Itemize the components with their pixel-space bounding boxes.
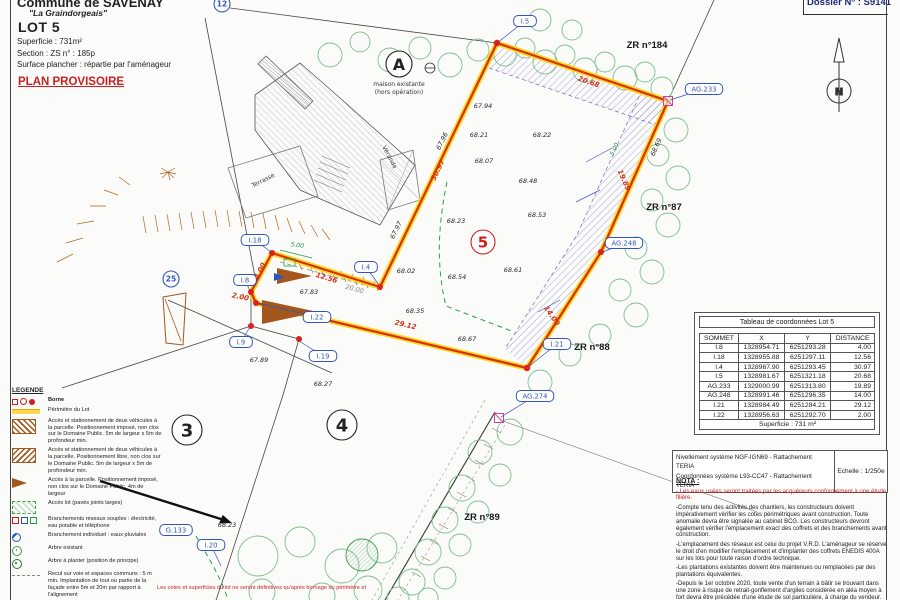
table-cell: 6251284.21 bbox=[785, 401, 831, 411]
surface-plancher-line: Surface plancher : répartie par l'aménag… bbox=[17, 60, 171, 69]
point-label-text: I.9 bbox=[237, 338, 246, 346]
table-cell: 1328984.49 bbox=[738, 401, 784, 411]
plan-text: maison existante bbox=[373, 81, 425, 88]
point-label-text: AG.233 bbox=[692, 85, 717, 93]
table-cell: 6251293.28 bbox=[785, 343, 831, 353]
elevation-label: 67.94 bbox=[474, 102, 493, 110]
tree-ex-icon bbox=[12, 546, 22, 556]
circled-label-A: A bbox=[386, 51, 412, 77]
elevation-label: 67.83 bbox=[300, 288, 319, 296]
perimetre-symbol bbox=[12, 407, 48, 415]
legend-item-label: Accès à la parcelle. Positionnement impo… bbox=[48, 477, 162, 497]
point-label-I.18: I.18 bbox=[241, 235, 271, 253]
table-cell: 1328991.46 bbox=[738, 391, 784, 401]
point-label-AG.248: AG.248 bbox=[603, 238, 643, 253]
point-label-text: AG.274 bbox=[523, 392, 548, 400]
table-header-cell: Y bbox=[785, 334, 831, 344]
elevation-label: 68.27 bbox=[314, 380, 333, 388]
recul-symbol bbox=[12, 571, 48, 579]
point-label-AG.274: AG.274 bbox=[501, 391, 554, 418]
elevation-label: 68.61 bbox=[504, 266, 523, 274]
legend-item-recul: Recul sur voie et espaces communs : 5 m … bbox=[12, 571, 162, 598]
table-row: I.81328954.716251293.284.00 bbox=[700, 343, 875, 353]
lieu-dit: "La Graindorgeais" bbox=[29, 8, 107, 18]
borne-symbol bbox=[12, 397, 48, 405]
point-label-text: I.19 bbox=[317, 352, 330, 360]
hedge-line bbox=[372, 400, 505, 600]
acces-fleche-symbol bbox=[12, 477, 48, 488]
acces-lot-symbol bbox=[12, 500, 48, 514]
table-footer-cell: Superficie : 731 m² bbox=[700, 420, 875, 430]
b-ci-icon bbox=[20, 398, 27, 405]
nota-paragraph: -Compte tenu des activités des chantiers… bbox=[676, 505, 888, 539]
elevation-label: 68.22 bbox=[533, 131, 552, 139]
sq-r-icon bbox=[12, 517, 19, 524]
pave-gr-icon bbox=[12, 501, 36, 514]
point-label-text: G.133 bbox=[166, 526, 186, 534]
table-row: I.41328967.906251293.4530.97 bbox=[700, 362, 875, 372]
table-cell: I.18 bbox=[700, 353, 739, 363]
plan-text: Terrasse bbox=[250, 172, 276, 190]
legend-item-arbre-existant: Arbre existant bbox=[12, 545, 162, 556]
hatch-br-icon bbox=[12, 419, 36, 434]
table-cell: I.21 bbox=[700, 401, 739, 411]
legend-item-borne: Borne bbox=[12, 397, 162, 405]
point-label-AG.233: AG.233 bbox=[670, 84, 723, 101]
point-label-I.19: I.19 bbox=[299, 341, 337, 362]
table-cell: I.5 bbox=[700, 372, 739, 382]
legend-item-label: Arbre existant bbox=[48, 545, 162, 552]
point-label-text: AG.248 bbox=[612, 239, 637, 247]
table-row: I.51328981.676251321.1820.68 bbox=[700, 372, 875, 382]
elevation-label: 68.07 bbox=[475, 157, 494, 165]
plan-provisoire-stamp: PLAN PROVISOIRE bbox=[18, 76, 124, 88]
nota-section: NOTA : - Les eaux usées seront traitées … bbox=[676, 478, 888, 600]
distance-label: 30.97 bbox=[430, 158, 447, 182]
table-cell: 1328981.67 bbox=[738, 372, 784, 382]
table-header-cell: DISTANCE bbox=[831, 334, 875, 344]
arrow-br-icon bbox=[12, 478, 27, 488]
legend-item-perimetre: Périmètre du Lot bbox=[12, 407, 162, 415]
table-cell: 2.00 bbox=[831, 410, 875, 420]
table-cell: AG.233 bbox=[700, 381, 739, 391]
table-cell: 6251297.11 bbox=[785, 353, 831, 363]
table-cell: 12.56 bbox=[831, 353, 875, 363]
elevation-label: 68.23 bbox=[218, 521, 237, 529]
table-cell: 6251321.18 bbox=[785, 372, 831, 382]
nivellement-line: Nivellement système NGF-IGN69 - Rattache… bbox=[676, 453, 831, 472]
table-cell: I.4 bbox=[700, 362, 739, 372]
table-cell: 4.00 bbox=[831, 343, 875, 353]
parcel-label: ZR n°87 bbox=[646, 202, 681, 213]
dossier-box: Dossier N° : S9141 bbox=[803, 0, 888, 15]
reseaux-symbol bbox=[12, 516, 48, 524]
plan-text: (hors opération) bbox=[375, 89, 423, 96]
circled-label-25: 25 bbox=[163, 271, 179, 287]
point-label-G.133: G.133 bbox=[160, 525, 193, 536]
per-bar-icon bbox=[12, 409, 40, 414]
b-sq-icon bbox=[12, 399, 18, 405]
legend-item-label: Arbre à planter (position de principe) bbox=[48, 558, 162, 565]
legend-item-label: Borne bbox=[48, 397, 162, 404]
elevation-label: 68.54 bbox=[448, 273, 467, 281]
tree-pl-icon bbox=[12, 559, 22, 569]
north-compass-icon: N bbox=[827, 38, 851, 112]
bornage-note: Les cotes et superficies du lot ne seron… bbox=[157, 585, 366, 591]
legend-item-label: Accès et stationnement de deux véhicules… bbox=[48, 418, 162, 445]
acces-libre-symbol bbox=[12, 447, 48, 463]
legend-title: LEGENDE bbox=[12, 387, 162, 394]
table-cell: I.22 bbox=[700, 410, 739, 420]
pluviales-symbol bbox=[12, 532, 48, 542]
legend-items: BornePérimètre du LotAccès et stationnem… bbox=[12, 397, 162, 600]
coordinate-table-grid: SOMMETXYDISTANCE I.81328954.716251293.28… bbox=[699, 333, 875, 430]
dossier-number: Dossier N° : S9141 bbox=[807, 0, 891, 8]
circled-label-12: 12 bbox=[214, 0, 230, 12]
legend-item-acces-fleche: Accès à la parcelle. Positionnement impo… bbox=[12, 477, 162, 497]
table-cell: 1328956.63 bbox=[738, 410, 784, 420]
table-cell: 1328967.90 bbox=[738, 362, 784, 372]
coordinate-table: Tableau de coordonnées Lot 5 SOMMETXYDIS… bbox=[694, 312, 880, 435]
elevation-label: 68.23 bbox=[447, 217, 466, 225]
table-cell: 29.12 bbox=[831, 401, 875, 411]
table-row: AG.2481328991.466251296.3514.00 bbox=[700, 391, 875, 401]
elevation-label: 67.89 bbox=[250, 356, 269, 364]
b-do-icon bbox=[29, 399, 35, 405]
legend-item-reseaux: Branchements réseaux souples : électrici… bbox=[12, 516, 162, 530]
legend-item-acces-lot: Accès lot (pavés joints larges) bbox=[12, 500, 162, 514]
point-label-text: I.21 bbox=[551, 340, 564, 348]
circled-label-text: 12 bbox=[217, 0, 227, 9]
coordinate-table-title: Tableau de coordonnées Lot 5 bbox=[699, 316, 875, 328]
nota-paragraph: -Les plantations existantes doivent être… bbox=[676, 565, 888, 579]
legend-item-arbre-planter: Arbre à planter (position de principe) bbox=[12, 558, 162, 569]
circled-label-5: 5 bbox=[471, 230, 495, 254]
utility-symbol-icon bbox=[425, 63, 435, 73]
circled-label-text: 25 bbox=[166, 275, 176, 284]
elevation-label: 68.67 bbox=[458, 335, 477, 343]
point-label-text: I.20 bbox=[205, 541, 218, 549]
nota-body: - Les eaux usées seront traitées par les… bbox=[676, 489, 888, 600]
table-row: AG.2331329000.996251313.8019.89 bbox=[700, 381, 875, 391]
legend-item-label: Périmètre du Lot bbox=[48, 407, 162, 414]
elevation-label: 68.48 bbox=[519, 177, 538, 185]
lot-title: LOT 5 bbox=[18, 19, 60, 35]
table-row: I.211328984.496251284.2129.12 bbox=[700, 401, 875, 411]
sheet-border-left bbox=[10, 0, 11, 600]
legend-item-acces-impose: Accès et stationnement de deux véhicules… bbox=[12, 418, 162, 445]
point-label-text: I.22 bbox=[311, 313, 324, 321]
superficie-line: Superficie : 731m² bbox=[17, 37, 82, 46]
table-cell: 6251296.35 bbox=[785, 391, 831, 401]
dash-gr-icon bbox=[12, 575, 40, 576]
elevation-label: 68.02 bbox=[397, 267, 416, 275]
elevation-label: 68.21 bbox=[470, 131, 489, 139]
circled-label-text: 4 bbox=[336, 415, 349, 436]
svg-text:N: N bbox=[835, 87, 843, 98]
point-label-text: I.18 bbox=[249, 236, 262, 244]
table-header-cell: X bbox=[738, 334, 784, 344]
table-cell: 1328954.71 bbox=[738, 343, 784, 353]
table-cell: AG.248 bbox=[700, 391, 739, 401]
elevation-label: 68.53 bbox=[528, 211, 547, 219]
circled-label-text: 5 bbox=[478, 233, 488, 251]
elevation-label: 68.35 bbox=[406, 307, 425, 315]
table-cell: 30.97 bbox=[831, 362, 875, 372]
elevation-label: 20.00 bbox=[344, 283, 364, 296]
table-cell: 6251292.70 bbox=[785, 410, 831, 420]
table-cell: I.8 bbox=[700, 343, 739, 353]
acces-impose-symbol bbox=[12, 418, 48, 434]
circled-label-3: 3 bbox=[172, 415, 202, 445]
circled-label-4: 4 bbox=[327, 410, 357, 440]
point-label-text: I.8 bbox=[241, 276, 250, 284]
sq-b-icon bbox=[21, 517, 28, 524]
table-row: I.221328956.636251292.702.00 bbox=[700, 410, 875, 420]
nota-paragraph: - Les eaux usées seront traitées par les… bbox=[676, 489, 888, 503]
legend-item-label: Accès lot (pavés joints larges) bbox=[48, 500, 162, 507]
legend-item-label: Branchements réseaux souples : électrici… bbox=[48, 516, 162, 530]
arbre-planter-symbol bbox=[12, 558, 48, 569]
arbre-existant-symbol bbox=[12, 545, 48, 556]
table-cell: 20.68 bbox=[831, 372, 875, 382]
legend-item-acces-libre: Accès et stationnement de deux véhicules… bbox=[12, 447, 162, 474]
legend-item-label: Branchement individuel : eaux pluviales bbox=[48, 532, 162, 539]
circled-label-text: A bbox=[393, 55, 406, 74]
parcel-label: ZR n°88 bbox=[574, 342, 609, 353]
legend-item-label: Recul sur voie et espaces communs : 5 m … bbox=[48, 571, 162, 598]
table-cell: 6251293.45 bbox=[785, 362, 831, 372]
section-line: Section : ZS n° : 185p bbox=[17, 49, 95, 58]
green-dim-label: 5.00 bbox=[290, 241, 304, 250]
nota-title: NOTA : bbox=[676, 478, 888, 486]
nota-paragraph: -Depuis le 1er octobre 2020, toute vente… bbox=[676, 581, 888, 600]
table-cell: 6251313.80 bbox=[785, 381, 831, 391]
circ-bl-icon bbox=[12, 533, 21, 542]
table-cell: 1329000.99 bbox=[738, 381, 784, 391]
point-label-I.5: I.5 bbox=[497, 16, 536, 44]
circled-label-text: 3 bbox=[181, 420, 194, 441]
nota-paragraph: -L'emplacement des réseaux est celui du … bbox=[676, 542, 888, 563]
legend-item-label: Accès et stationnement de deux véhicules… bbox=[48, 447, 162, 474]
point-label-I.9: I.9 bbox=[230, 327, 253, 348]
table-cell: 19.89 bbox=[831, 381, 875, 391]
legend: LEGENDE BornePérimètre du LotAccès et st… bbox=[12, 387, 162, 600]
table-footer-row: Superficie : 731 m² bbox=[700, 420, 875, 430]
legend-item-pluviales: Branchement individuel : eaux pluviales bbox=[12, 532, 162, 542]
parcel-label: ZR n°184 bbox=[627, 40, 668, 51]
hatch-br2-icon bbox=[12, 448, 36, 463]
distance-label: 29.12 bbox=[394, 319, 417, 332]
point-label-text: I.5 bbox=[521, 17, 530, 25]
table-row: I.181328955.886251297.1112.56 bbox=[700, 353, 875, 363]
table-cell: 14.00 bbox=[831, 391, 875, 401]
table-header-row: SOMMETXYDISTANCE bbox=[700, 334, 875, 344]
parcel-label: ZR n°89 bbox=[464, 512, 499, 523]
table-header-cell: SOMMET bbox=[700, 334, 739, 344]
sq-g-icon bbox=[30, 517, 37, 524]
point-label-text: I.4 bbox=[362, 263, 371, 271]
distance-label: 2.00 bbox=[231, 291, 250, 302]
table-cell: 1328955.88 bbox=[738, 353, 784, 363]
